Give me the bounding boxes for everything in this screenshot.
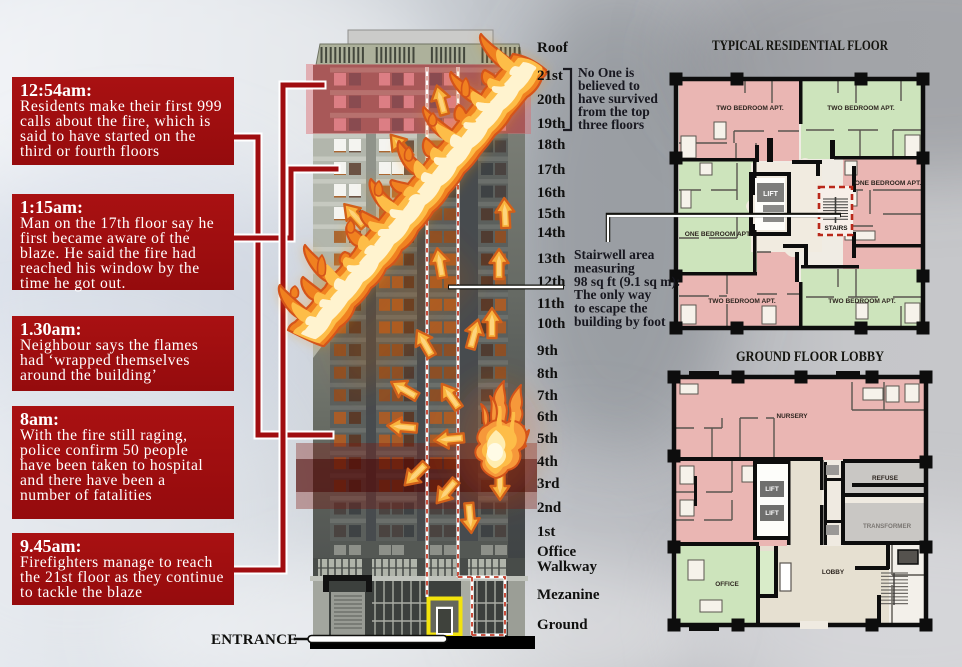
svg-text:14th: 14th bbox=[537, 225, 566, 241]
svg-text:to tackle the blaze: to tackle the blaze bbox=[20, 584, 143, 601]
svg-text:5th: 5th bbox=[537, 431, 558, 447]
svg-text:21st: 21st bbox=[537, 68, 563, 84]
svg-text:TRANSFORMER: TRANSFORMER bbox=[863, 523, 912, 530]
svg-text:OFFICE: OFFICE bbox=[715, 581, 739, 588]
svg-text:ONE BEDROOM APT.: ONE BEDROOM APT. bbox=[855, 180, 922, 187]
svg-text:3rd: 3rd bbox=[537, 476, 560, 492]
svg-text:TWO BEDROOM APT.: TWO BEDROOM APT. bbox=[716, 105, 784, 112]
svg-text:number of fatalities: number of fatalities bbox=[20, 487, 152, 504]
svg-text:time he got out.: time he got out. bbox=[20, 275, 126, 292]
svg-text:TWO BEDROOM APT.: TWO BEDROOM APT. bbox=[827, 105, 895, 112]
svg-text:18th: 18th bbox=[537, 137, 566, 153]
svg-text:4th: 4th bbox=[537, 454, 558, 470]
svg-text:20th: 20th bbox=[537, 92, 566, 108]
svg-text:19th: 19th bbox=[537, 116, 566, 132]
svg-text:NURSERY: NURSERY bbox=[776, 413, 808, 420]
svg-text:12:54am:: 12:54am: bbox=[20, 80, 92, 100]
svg-text:2nd: 2nd bbox=[537, 500, 562, 516]
svg-text:6th: 6th bbox=[537, 409, 558, 425]
svg-text:8th: 8th bbox=[537, 366, 558, 382]
svg-text:9th: 9th bbox=[537, 343, 558, 359]
svg-text:Ground: Ground bbox=[537, 617, 588, 633]
svg-text:1:15am:: 1:15am: bbox=[20, 197, 83, 217]
svg-text:GROUND FLOOR LOBBY: GROUND FLOOR LOBBY bbox=[736, 349, 884, 365]
svg-text:Walkway: Walkway bbox=[537, 559, 598, 575]
svg-text:three floors: three floors bbox=[578, 117, 644, 132]
svg-text:Office: Office bbox=[537, 544, 576, 560]
svg-text:LIFT: LIFT bbox=[763, 191, 778, 198]
svg-text:17th: 17th bbox=[537, 162, 566, 178]
svg-text:ENTRANCE: ENTRANCE bbox=[211, 632, 298, 648]
svg-text:ONE BEDROOM APT.: ONE BEDROOM APT. bbox=[685, 231, 752, 238]
svg-text:building by foot: building by foot bbox=[574, 314, 666, 329]
svg-text:1.30am:: 1.30am: bbox=[20, 319, 82, 339]
svg-text:LIFT: LIFT bbox=[765, 510, 779, 517]
svg-text:1st: 1st bbox=[537, 524, 555, 540]
svg-text:11th: 11th bbox=[537, 296, 565, 312]
svg-text:10th: 10th bbox=[537, 316, 566, 332]
svg-text:LOBBY: LOBBY bbox=[822, 569, 845, 576]
svg-text:REFUSE: REFUSE bbox=[872, 475, 899, 482]
svg-text:TYPICAL RESIDENTIAL FLOOR: TYPICAL RESIDENTIAL FLOOR bbox=[712, 38, 888, 54]
svg-text:7th: 7th bbox=[537, 388, 558, 404]
svg-text:around the building’: around the building’ bbox=[20, 367, 157, 384]
svg-text:LIFT: LIFT bbox=[765, 486, 779, 493]
svg-text:STAIRS: STAIRS bbox=[825, 225, 849, 232]
svg-text:13th: 13th bbox=[537, 251, 566, 267]
svg-text:TWO BEDROOM APT.: TWO BEDROOM APT. bbox=[828, 298, 896, 305]
svg-text:8am:: 8am: bbox=[20, 409, 59, 429]
svg-text:Roof: Roof bbox=[537, 40, 569, 56]
svg-text:9.45am:: 9.45am: bbox=[20, 536, 82, 556]
svg-text:third or fourth floors: third or fourth floors bbox=[20, 143, 160, 160]
svg-text:TWO BEDROOM APT.: TWO BEDROOM APT. bbox=[708, 298, 776, 305]
svg-text:Mezanine: Mezanine bbox=[537, 587, 600, 603]
svg-text:16th: 16th bbox=[537, 185, 566, 201]
svg-text:15th: 15th bbox=[537, 206, 566, 222]
